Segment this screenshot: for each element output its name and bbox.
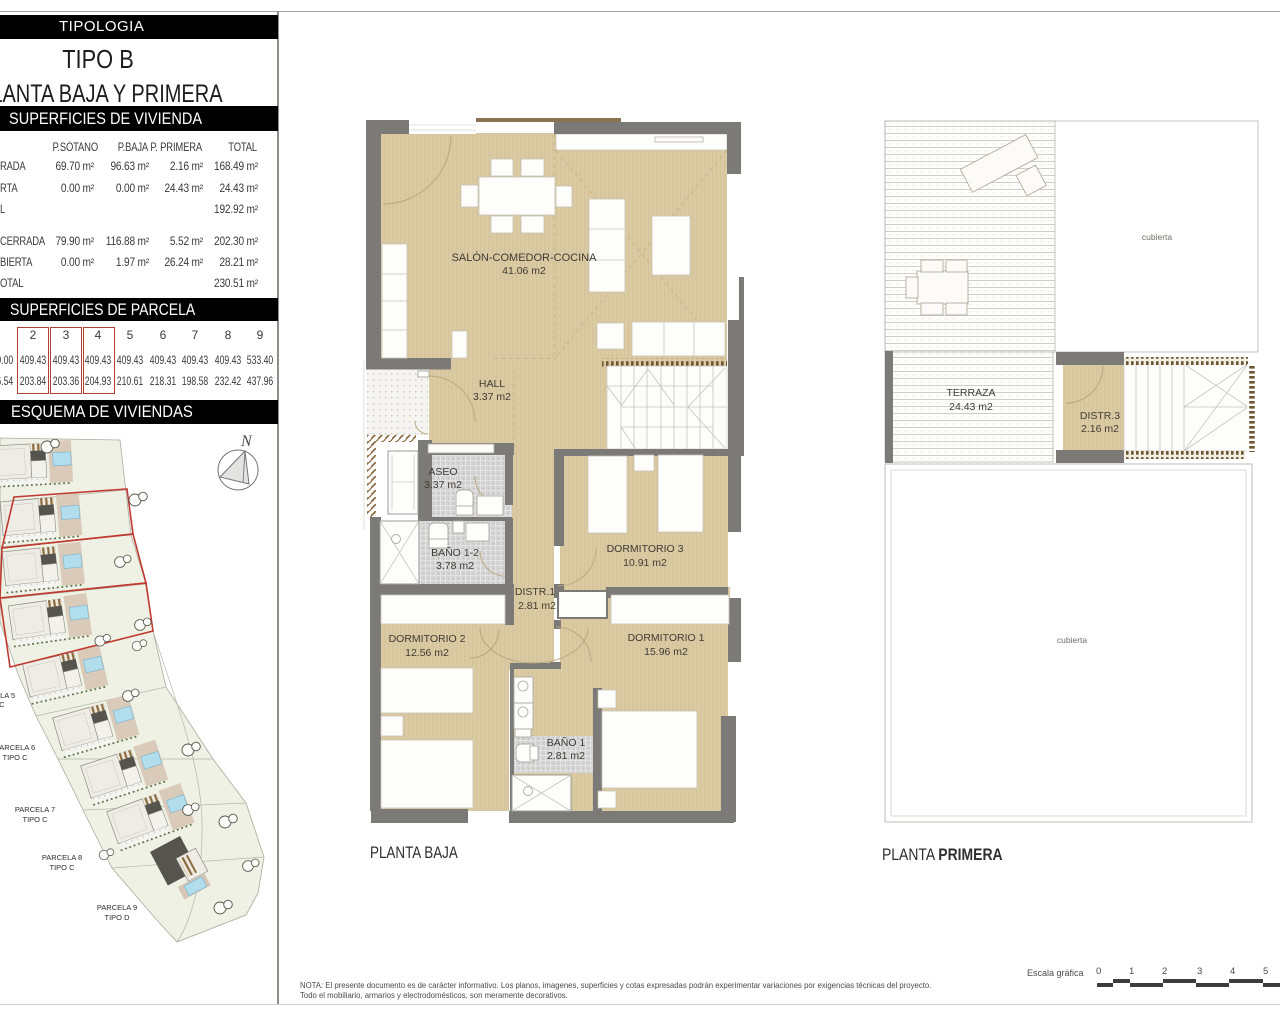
svg-text:BAÑO 1-2: BAÑO 1-2 <box>431 546 479 559</box>
svg-text:15.96 m2: 15.96 m2 <box>644 646 688 658</box>
svg-text:DORMITORIO 2: DORMITORIO 2 <box>389 633 466 645</box>
svg-text:cubierta: cubierta <box>1142 232 1173 242</box>
svg-text:DORMITORIO 1: DORMITORIO 1 <box>628 632 705 644</box>
svg-text:3.78 m2: 3.78 m2 <box>436 560 474 572</box>
svg-text:N: N <box>240 433 253 450</box>
svg-text:TIPO C: TIPO C <box>49 863 75 872</box>
svg-text:DORMITORIO 3: DORMITORIO 3 <box>607 543 684 555</box>
svg-text:3.37 m2: 3.37 m2 <box>424 479 462 491</box>
svg-text:2.81 m2: 2.81 m2 <box>518 600 556 612</box>
svg-text:2.16 m2: 2.16 m2 <box>1081 423 1119 435</box>
svg-text:SALÓN-COMEDOR-COCINA: SALÓN-COMEDOR-COCINA <box>452 251 598 264</box>
svg-text:10.91 m2: 10.91 m2 <box>623 557 667 569</box>
svg-text:cubierta: cubierta <box>1057 635 1088 645</box>
svg-text:TERRAZA: TERRAZA <box>946 387 995 399</box>
svg-text:41.06 m2: 41.06 m2 <box>502 265 546 277</box>
svg-text:12.56 m2: 12.56 m2 <box>405 647 449 659</box>
svg-text:PARCELA 8: PARCELA 8 <box>42 853 82 862</box>
svg-text:BAÑO 1: BAÑO 1 <box>547 736 586 749</box>
svg-text:HALL: HALL <box>479 378 505 390</box>
svg-text:DISTR.3: DISTR.3 <box>1080 410 1120 422</box>
svg-text:PARCELA 9: PARCELA 9 <box>97 903 137 912</box>
svg-text:TIPO C: TIPO C <box>2 753 28 762</box>
svg-text:TIPO C: TIPO C <box>22 815 48 824</box>
svg-text:DISTR.1: DISTR.1 <box>515 586 555 598</box>
svg-text:PARCELA 5: PARCELA 5 <box>0 691 15 700</box>
svg-text:3.37 m2: 3.37 m2 <box>473 391 511 403</box>
svg-text:ASEO: ASEO <box>428 466 457 478</box>
svg-text:PARCELA 6: PARCELA 6 <box>0 743 35 752</box>
svg-text:PARCELA 7: PARCELA 7 <box>15 805 55 814</box>
svg-text:TIPO C: TIPO C <box>0 700 5 709</box>
svg-text:2.81 m2: 2.81 m2 <box>547 750 585 762</box>
svg-text:24.43 m2: 24.43 m2 <box>949 401 993 413</box>
svg-text:TIPO D: TIPO D <box>104 913 130 922</box>
